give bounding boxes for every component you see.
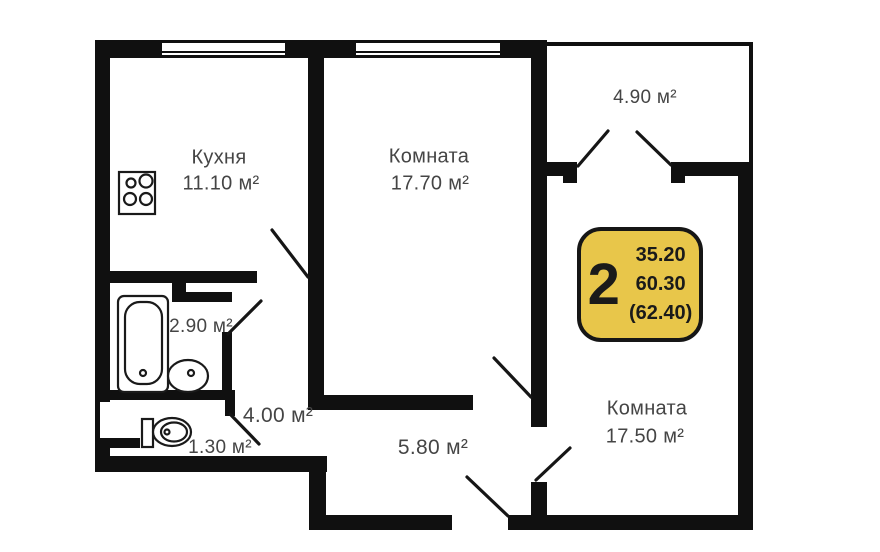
- room2-area: 17.50 м²: [606, 426, 684, 449]
- toilet-tank: [142, 419, 153, 447]
- fixtures-layer: [0, 0, 880, 552]
- kitchen-area: 11.10 м²: [183, 173, 260, 196]
- balcony-door-swing-right: [637, 132, 671, 165]
- entrance-door-swing: [467, 477, 508, 516]
- badge-total-area: (62.40): [629, 299, 692, 328]
- floor-plan: Кухня 11.10 м² Комната 17.70 м² 4.90 м² …: [0, 0, 880, 552]
- sink-icon: [168, 360, 208, 392]
- wc-area: 1.30 м²: [188, 437, 252, 459]
- room2-door-swing: [536, 448, 570, 480]
- room1-area: 17.70 м²: [391, 173, 469, 196]
- badge-floor-area: 60.30: [636, 270, 686, 299]
- kitchen-label: Кухня: [191, 147, 246, 170]
- balcony-door-swing-left: [578, 131, 608, 166]
- apartment-badge: 2 35.20 60.30 (62.40): [577, 227, 703, 342]
- room1-label: Комната: [389, 146, 469, 169]
- bathroom-door-swing: [228, 301, 261, 334]
- hallway-area: 4.00 м²: [243, 404, 313, 428]
- room1-door-swing: [494, 358, 531, 397]
- bathroom-area: 2.90 м²: [169, 316, 233, 338]
- badge-areas: 35.20 60.30 (62.40): [629, 241, 692, 328]
- room2-label: Комната: [607, 398, 687, 421]
- badge-living-area: 35.20: [636, 241, 686, 270]
- corridor-area: 5.80 м²: [398, 436, 468, 460]
- kitchen-door-swing: [272, 230, 308, 277]
- balcony-area: 4.90 м²: [613, 87, 677, 109]
- badge-room-count: 2: [588, 256, 620, 314]
